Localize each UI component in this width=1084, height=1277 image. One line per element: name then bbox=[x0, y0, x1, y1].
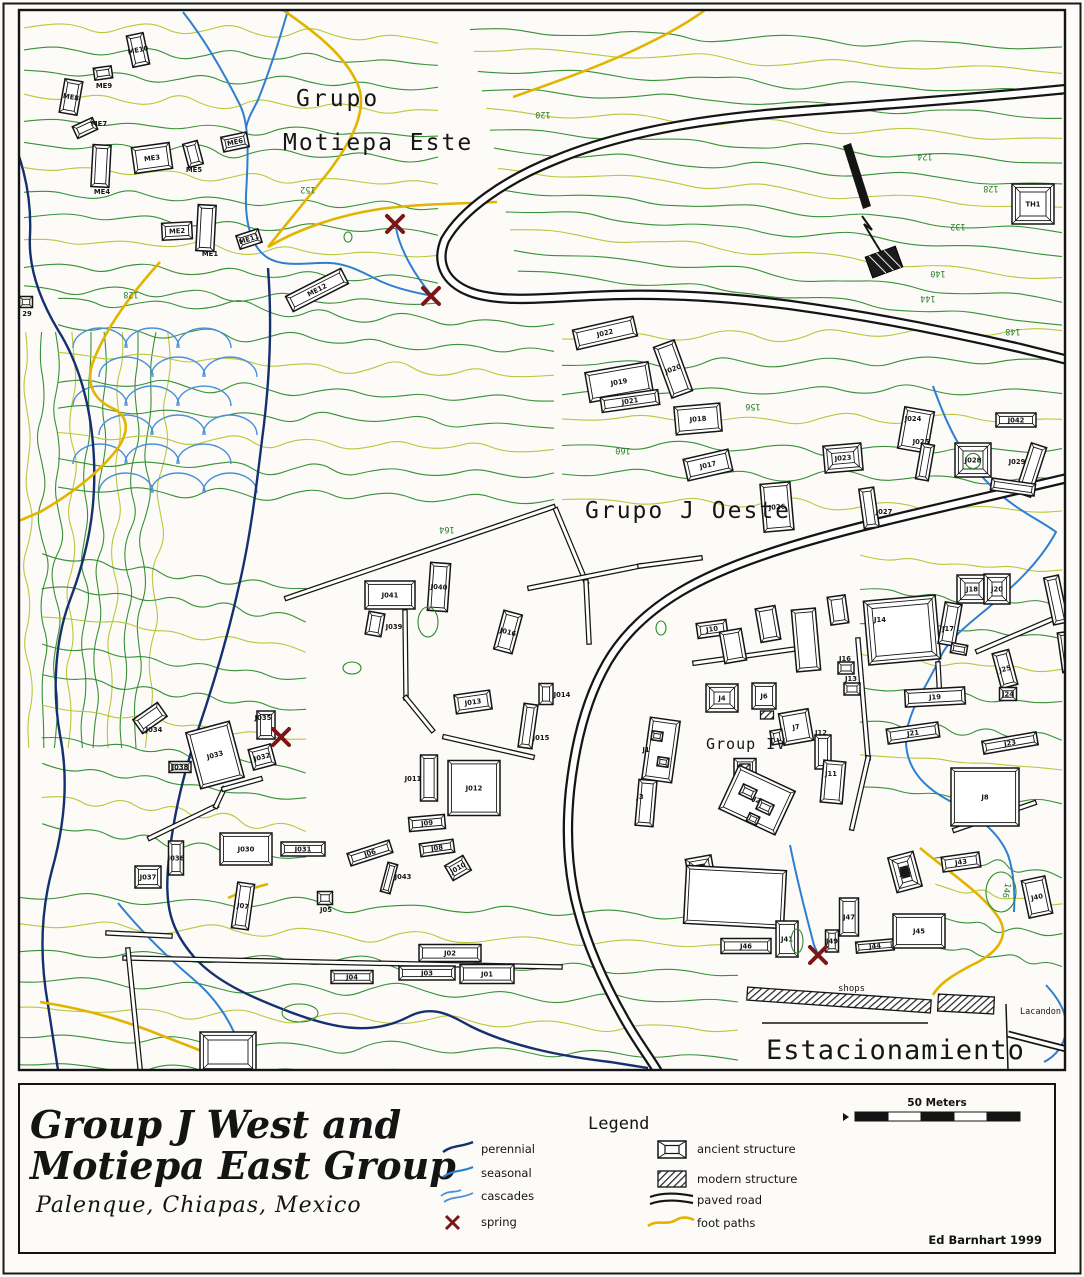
foot-path bbox=[14, 262, 160, 523]
legend-item-seasonal: seasonal bbox=[443, 1166, 532, 1180]
structure-J033: J033 bbox=[186, 721, 244, 789]
structure-J03: J03 bbox=[399, 966, 455, 980]
structure-J020: J020 bbox=[653, 340, 692, 398]
structure bbox=[827, 595, 849, 625]
structure-label: J3 bbox=[635, 793, 644, 801]
foot-path bbox=[513, 10, 705, 97]
structure-J08: J08 bbox=[419, 839, 454, 857]
structure-J4: J4 bbox=[706, 684, 738, 712]
structure-label: ME7 bbox=[91, 120, 107, 128]
structure-J040: J040 bbox=[427, 562, 450, 611]
structure-label: J45 bbox=[912, 927, 925, 935]
structure-label: J035 bbox=[254, 714, 272, 722]
structure-J022: J022 bbox=[573, 316, 638, 349]
structure bbox=[684, 865, 787, 928]
structure-J018: J018 bbox=[674, 403, 722, 435]
structure-label: J018 bbox=[688, 415, 707, 425]
structure-ME8: ME8 bbox=[59, 79, 83, 116]
legend-item-ancient-structure: ancient structure bbox=[658, 1141, 796, 1158]
cascades-icon bbox=[441, 1190, 473, 1202]
structure bbox=[761, 711, 774, 719]
palenque-survey-map: ME10ME9ME8ME7ME3ME5ME6ME4ME2ME1ME11ME122… bbox=[0, 0, 1084, 1277]
structure-J6: J6 bbox=[752, 683, 776, 709]
legend-item-cascades: cascades bbox=[441, 1189, 534, 1203]
structure-J44: J44 bbox=[856, 939, 895, 953]
structure-label: ME9 bbox=[96, 82, 112, 90]
structure-label: J027 bbox=[875, 508, 893, 516]
structure-label: J031 bbox=[294, 845, 312, 853]
contour-label: 128 bbox=[123, 289, 138, 299]
structure-ME2: ME2 bbox=[162, 222, 193, 241]
region-label-group-iv: Group IV bbox=[706, 735, 786, 753]
legend-label: paved road bbox=[697, 1193, 762, 1207]
structure-J42: J42 bbox=[888, 851, 922, 893]
scale-label: 50 Meters bbox=[907, 1097, 966, 1109]
structure-J40: J40 bbox=[1021, 876, 1052, 918]
structure-label: J8 bbox=[980, 793, 989, 801]
structure-label: J01 bbox=[480, 970, 493, 978]
structure-label: J04 bbox=[345, 973, 358, 981]
structure-label: J023 bbox=[833, 454, 852, 464]
spring-marker bbox=[423, 288, 439, 304]
spring-marker bbox=[387, 216, 403, 232]
structure-label: J028 bbox=[964, 456, 982, 464]
structure-J07: J07 bbox=[231, 882, 254, 930]
spring-x-icon bbox=[446, 1216, 459, 1229]
structure-J039 bbox=[365, 611, 385, 636]
structure-ME12: ME12 bbox=[286, 268, 349, 311]
structure-label: J1 bbox=[641, 746, 650, 754]
structure-J031: J031 bbox=[281, 842, 325, 856]
structure-ME5 bbox=[183, 140, 204, 167]
structure-J011 bbox=[421, 755, 438, 801]
structure-label: J44 bbox=[868, 942, 882, 951]
legend-label: seasonal bbox=[481, 1166, 532, 1180]
structure-label: J46 bbox=[739, 942, 752, 950]
legend-item-foot-paths: foot paths bbox=[648, 1216, 755, 1230]
structure-J09: J09 bbox=[408, 814, 445, 831]
structure-label: J011 bbox=[404, 775, 422, 783]
structure-label: J18 bbox=[965, 585, 978, 593]
structure-label: J17 bbox=[941, 625, 954, 633]
structure-J05 bbox=[318, 892, 333, 905]
structure-ME11: ME11 bbox=[236, 229, 262, 249]
structure-J037: J037 bbox=[135, 866, 161, 888]
legend-item-modern-structure: modern structure bbox=[658, 1171, 797, 1187]
contour-label: 146 bbox=[1000, 882, 1013, 899]
structure-J45: J45 bbox=[893, 914, 945, 948]
structure-label: J029 bbox=[1008, 458, 1026, 466]
structure-label: J47 bbox=[842, 913, 855, 921]
structure-J032: J032 bbox=[248, 744, 276, 770]
contour-label: 120 bbox=[535, 109, 550, 119]
foot-paths-icon bbox=[648, 1218, 694, 1226]
structure-label: J49 bbox=[825, 937, 838, 945]
paved-road-icon bbox=[650, 1194, 693, 1205]
region-label-estacionamiento: Estacionamiento bbox=[766, 1035, 1025, 1066]
structure bbox=[791, 608, 820, 672]
seasonal-stream bbox=[246, 10, 288, 128]
structure-label: J09 bbox=[420, 819, 434, 828]
structure-J19: J19 bbox=[905, 687, 966, 707]
structure-ME6: ME6 bbox=[221, 132, 250, 152]
structure-label: J037 bbox=[139, 873, 157, 881]
structure-label: ME2 bbox=[169, 227, 186, 236]
structure bbox=[657, 757, 669, 767]
structure-label: J4 bbox=[717, 694, 726, 702]
map-subtitle: Palenque, Chiapas, Mexico bbox=[35, 1193, 362, 1218]
structure-label: J24 bbox=[1001, 690, 1014, 698]
legend-label: modern structure bbox=[697, 1172, 797, 1186]
modern-structure-icon bbox=[658, 1171, 686, 1187]
structure-J46: J46 bbox=[721, 939, 771, 954]
structure-label: J05 bbox=[319, 906, 332, 914]
map-title-line1: Group J West and bbox=[30, 1102, 401, 1147]
structure-label: J040 bbox=[429, 583, 448, 592]
structure-J014 bbox=[539, 684, 553, 705]
map-content: ME10ME9ME8ME7ME3ME5ME6ME4ME2ME1ME11ME122… bbox=[2, 10, 1078, 1088]
structure-J17 bbox=[938, 602, 962, 646]
structure-J016: J016 bbox=[494, 610, 523, 654]
contour-label: 160 bbox=[615, 445, 630, 455]
structure-ME4 bbox=[91, 145, 111, 188]
structure-J43: J43 bbox=[941, 852, 981, 872]
structure-label: J11 bbox=[824, 770, 837, 778]
structure-J11 bbox=[820, 760, 846, 804]
structure-ME10: ME10 bbox=[124, 32, 151, 68]
structure-label: J012 bbox=[465, 784, 483, 792]
structure-J20: J20 bbox=[984, 574, 1010, 604]
structure-J25: J25 bbox=[992, 649, 1018, 688]
structure bbox=[651, 731, 663, 741]
region-label-motiepa-este: Motiepa Este bbox=[283, 130, 473, 156]
structure-J02: J02 bbox=[419, 945, 481, 962]
terrace-walls bbox=[108, 507, 1062, 1068]
contour-label: 132 bbox=[950, 221, 965, 231]
contour-label: 144 bbox=[920, 293, 935, 303]
structure-J010: J010 bbox=[445, 855, 472, 880]
structure-label: J034 bbox=[145, 726, 163, 734]
structure-29 bbox=[20, 297, 33, 308]
contour-label: 140 bbox=[930, 268, 945, 278]
structure bbox=[950, 643, 967, 656]
structure-label: J043 bbox=[394, 873, 412, 881]
region-label-shops: shops bbox=[838, 984, 865, 994]
structure-J06: J06 bbox=[347, 840, 393, 866]
legend-item-perennial: perennial bbox=[443, 1142, 535, 1156]
structure-J028: J028 bbox=[955, 443, 991, 477]
structure-label: J024 bbox=[904, 415, 922, 423]
structure-label: J03 bbox=[420, 969, 433, 977]
structure-J23: J23 bbox=[982, 732, 1038, 754]
contour-label: 124 bbox=[917, 151, 932, 161]
structures: ME10ME9ME8ME7ME3ME5ME6ME4ME2ME1ME11ME122… bbox=[20, 32, 1075, 1072]
legend-item-paved-road: paved road bbox=[650, 1193, 762, 1207]
structure-J3 bbox=[635, 779, 657, 826]
structure-J47: J47 bbox=[840, 898, 859, 936]
seasonal-stream bbox=[396, 228, 429, 292]
structure-J042: J042 bbox=[996, 413, 1036, 427]
structure-J017: J017 bbox=[683, 449, 733, 481]
scanned-map-page: ME10ME9ME8ME7ME3ME5ME6ME4ME2ME1ME11ME122… bbox=[0, 0, 1084, 1277]
structure-J012: J012 bbox=[448, 761, 500, 816]
structure-J04: J04 bbox=[331, 971, 373, 984]
structure bbox=[938, 994, 995, 1014]
structure-label: ME4 bbox=[94, 188, 110, 196]
legend-label: foot paths bbox=[697, 1216, 755, 1230]
structure-J21: J21 bbox=[886, 722, 940, 744]
structure-J030: J030 bbox=[220, 833, 272, 865]
structure-label: J14 bbox=[873, 616, 886, 624]
structure-label: J039 bbox=[385, 623, 403, 631]
legend-item-spring: spring bbox=[446, 1215, 517, 1229]
contour-label: 128 bbox=[983, 183, 998, 193]
structure-J013: J013 bbox=[454, 690, 492, 714]
structure-J16 bbox=[838, 662, 854, 674]
structure-label: J6 bbox=[759, 692, 768, 700]
structure-label: J041 bbox=[381, 591, 399, 599]
legend-label: spring bbox=[481, 1215, 517, 1229]
paved-road bbox=[441, 88, 1076, 362]
structure-label: J19 bbox=[928, 693, 942, 702]
author-credit: Ed Barnhart 1999 bbox=[928, 1233, 1042, 1247]
structure-label: J014 bbox=[553, 691, 571, 699]
structure-label: J16 bbox=[838, 655, 851, 663]
region-label-lacandon-sh: Lacandon sh bbox=[1020, 1007, 1076, 1017]
structure bbox=[719, 628, 746, 663]
structure-label: J7 bbox=[791, 723, 801, 732]
structure-J023: J023 bbox=[823, 443, 863, 473]
structure-J8: J8 bbox=[951, 768, 1019, 826]
structure-label: TH1 bbox=[1025, 200, 1040, 208]
contour-label: 152 bbox=[300, 184, 315, 194]
structure-J14 bbox=[863, 595, 940, 665]
structure-label: J12 bbox=[814, 729, 827, 737]
structure-ME3: ME3 bbox=[131, 142, 172, 173]
structure-J041: J041 bbox=[365, 581, 415, 609]
structure-J18: J18 bbox=[957, 575, 987, 603]
region-label-grupo: Grupo bbox=[296, 86, 380, 112]
structure-J01: J01 bbox=[460, 965, 514, 984]
region-label-grupo-j-oeste: Grupo J Oeste bbox=[585, 498, 791, 524]
structure-label: J042 bbox=[1007, 416, 1025, 424]
structure-J13 bbox=[844, 683, 860, 695]
structure-label: J015 bbox=[532, 734, 550, 742]
contour-label: 164 bbox=[439, 524, 454, 534]
structure-label: ME5 bbox=[186, 166, 202, 174]
structure-ME9 bbox=[93, 66, 112, 80]
contour-label: 156 bbox=[745, 401, 760, 411]
structure-label: 29 bbox=[22, 310, 32, 318]
structure-label: J13 bbox=[844, 675, 857, 683]
structure bbox=[755, 606, 781, 643]
spring-marker bbox=[810, 947, 826, 963]
structure-label: J025 bbox=[912, 438, 930, 446]
legend-label: ancient structure bbox=[697, 1142, 796, 1156]
structure-J036: J036 bbox=[167, 841, 185, 875]
legend-label: cascades bbox=[481, 1189, 534, 1203]
structure-label: J036 bbox=[167, 854, 185, 862]
structure-TH1: TH1 bbox=[1012, 184, 1054, 224]
legend-label: perennial bbox=[481, 1142, 535, 1156]
structure-label: J030 bbox=[237, 845, 255, 853]
structure-label: J20 bbox=[990, 585, 1003, 593]
structure-label: J02 bbox=[443, 949, 456, 957]
legend-title: Legend bbox=[588, 1114, 649, 1134]
contour-label: 148 bbox=[1005, 326, 1020, 336]
structure-J038: J038 bbox=[169, 762, 191, 773]
scale-bar: 50 Meters bbox=[843, 1097, 1020, 1121]
structure bbox=[200, 1032, 256, 1072]
structure-label: J038 bbox=[171, 763, 189, 771]
structure-label: ME1 bbox=[202, 250, 218, 258]
structure-J24: J24 bbox=[1000, 688, 1017, 701]
structure-ME1 bbox=[196, 205, 216, 252]
map-title-line2: Motiepa East Group bbox=[28, 1143, 456, 1188]
